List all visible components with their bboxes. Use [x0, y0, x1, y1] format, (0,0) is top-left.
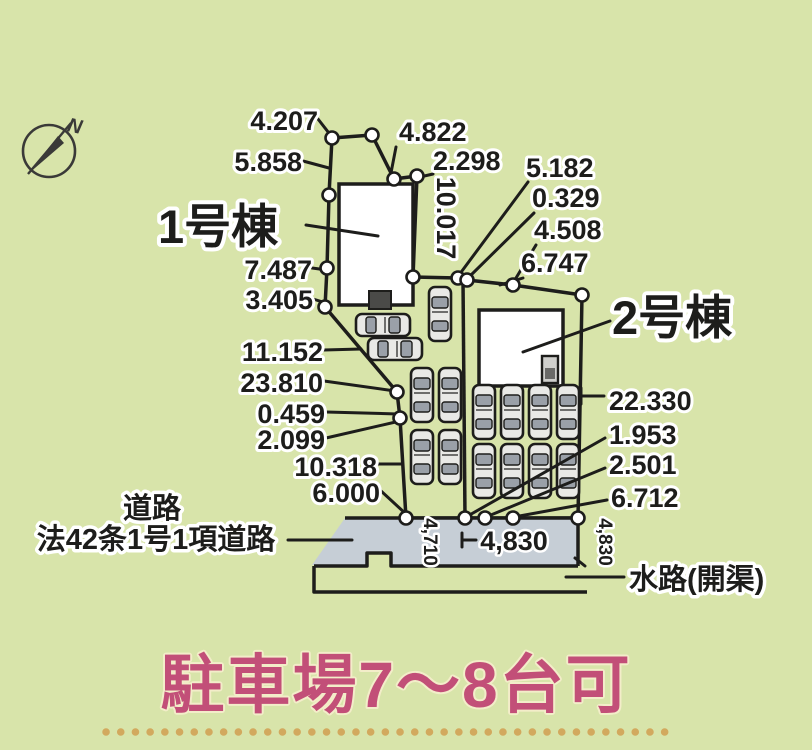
parking-caption: 駐車場7～8台可: [160, 649, 631, 721]
car-icon: [529, 385, 551, 439]
dim-5858: 5.858: [234, 147, 302, 177]
car-icon: [429, 287, 451, 341]
dim-6000: 6.000: [312, 478, 380, 508]
dim-4822: 4.822: [399, 117, 467, 147]
background: [0, 0, 812, 750]
boundary-vertex: [459, 512, 472, 525]
boundary-vertex: [461, 274, 474, 287]
leader-0459: [326, 412, 398, 414]
boundary-vertex: [319, 301, 332, 314]
boundary-vertex: [323, 189, 336, 202]
dim-4207: 4.207: [250, 106, 318, 136]
boundary-vertex: [507, 512, 520, 525]
dim-23810: 23.810: [240, 368, 323, 398]
boundary-vertex: [321, 262, 334, 275]
boundary-vertex: [400, 512, 413, 525]
dim-7487: 7.487: [244, 255, 312, 285]
dim-road-4710: 4,710: [419, 518, 440, 566]
dim-1953: 1.953: [609, 420, 677, 450]
dim-3405: 3.405: [245, 285, 313, 315]
dim-2501: 2.501: [609, 450, 677, 480]
car-icon: [557, 444, 579, 498]
dim-5182: 5.182: [526, 153, 594, 183]
dim-road-4830: 4,830: [480, 526, 548, 556]
car-icon: [473, 385, 495, 439]
road-notch: [368, 554, 390, 566]
car-icon: [439, 368, 461, 422]
dim-4508: 4.508: [534, 215, 602, 245]
dim-11152: 11.152: [242, 337, 323, 367]
dim-6712: 6.712: [611, 483, 679, 513]
car-icon: [411, 368, 433, 422]
building-2-entrance-step: [545, 368, 555, 379]
dim-road-4830v: 4,830: [594, 518, 615, 566]
car-icon: [368, 338, 422, 360]
car-icon: [473, 444, 495, 498]
dim-2298: 2.298: [433, 146, 501, 176]
boundary-vertex: [326, 132, 339, 145]
site-plan-page: N 4.207 5.858 7.487 3.405 11.152 23.810 …: [0, 0, 812, 750]
dim-0329: 0.329: [532, 183, 600, 213]
boundary-vertex: [391, 386, 404, 399]
site-plan-drawing: N 4.207 5.858 7.487 3.405 11.152 23.810 …: [0, 0, 812, 750]
boundary-vertex: [572, 512, 585, 525]
car-icon: [356, 314, 410, 336]
boundary-vertex: [507, 279, 520, 292]
building-2-label: 2号棟: [612, 291, 733, 344]
building-1-entrance: [369, 291, 391, 309]
car-icon: [411, 430, 433, 484]
road-label-line2: 法42条1号1項道路: [37, 523, 277, 556]
parcel-divider-line: [463, 280, 465, 518]
dim-6747: 6.747: [521, 248, 589, 278]
waterway-label: 水路(開渠): [629, 563, 764, 596]
building-1-footprint: [339, 184, 413, 305]
car-icon: [439, 430, 461, 484]
building-1-label: 1号棟: [158, 200, 279, 253]
boundary-vertex: [411, 170, 424, 183]
dim-2099: 2.099: [257, 425, 325, 455]
car-icon: [557, 385, 579, 439]
road-label-line1: 道路: [123, 492, 182, 525]
boundary-vertex: [407, 271, 420, 284]
dim-10017: 10.017: [431, 177, 461, 260]
boundary-vertex: [479, 512, 492, 525]
boundary-vertex: [366, 129, 379, 142]
dim-22330: 22.330: [609, 386, 692, 416]
leader-11152: [324, 349, 361, 350]
boundary-vertex: [388, 173, 401, 186]
car-icon: [501, 385, 523, 439]
boundary-vertex: [394, 412, 407, 425]
boundary-vertex: [576, 289, 589, 302]
